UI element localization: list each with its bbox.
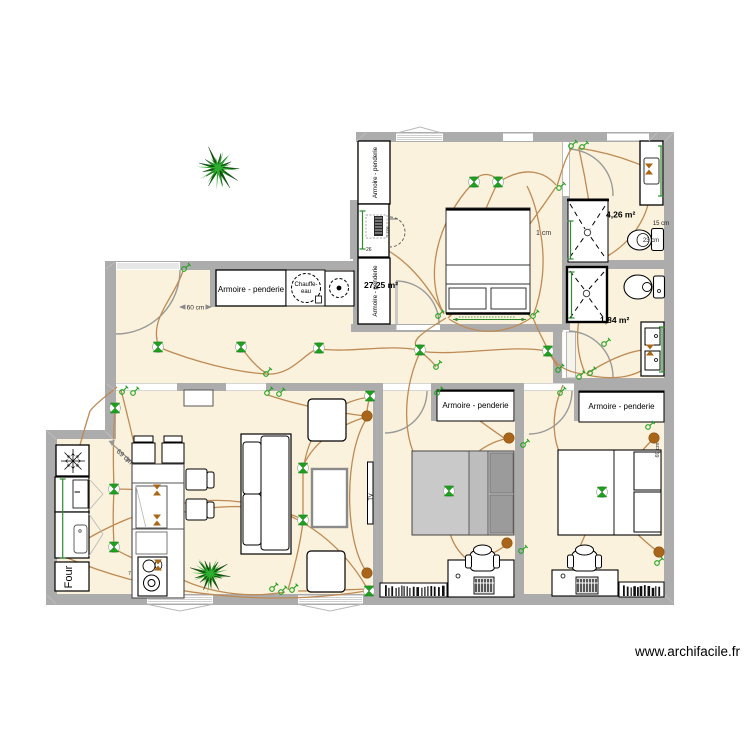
svg-text:www.archifacile.fr: www.archifacile.fr bbox=[634, 644, 741, 659]
svg-text:4,26 m²: 4,26 m² bbox=[606, 210, 635, 220]
svg-text:Armoire - penderie: Armoire - penderie bbox=[218, 285, 285, 294]
svg-text:Four: Four bbox=[63, 565, 75, 588]
svg-text:TV: TV bbox=[369, 493, 375, 500]
svg-text:26: 26 bbox=[366, 247, 372, 253]
svg-text:69 cm: 69 cm bbox=[655, 442, 661, 457]
svg-text:60 cm: 60 cm bbox=[187, 305, 205, 312]
svg-text:1 cm: 1 cm bbox=[536, 230, 551, 237]
svg-text:eau: eau bbox=[301, 289, 311, 295]
svg-text:27,25 m²: 27,25 m² bbox=[364, 280, 398, 290]
svg-text:Armoire - penderie: Armoire - penderie bbox=[372, 146, 379, 198]
svg-text:Armoire - penderie: Armoire - penderie bbox=[442, 401, 509, 410]
svg-text:15 cm: 15 cm bbox=[653, 221, 669, 227]
svg-text:Armoire - penderie: Armoire - penderie bbox=[372, 265, 379, 317]
svg-text:1 cm: 1 cm bbox=[385, 227, 391, 237]
svg-text:Chauffe-: Chauffe- bbox=[295, 282, 318, 288]
svg-text:23 cm: 23 cm bbox=[643, 238, 659, 244]
svg-text:Armoire - penderie: Armoire - penderie bbox=[588, 402, 655, 411]
svg-text:1,84 m²: 1,84 m² bbox=[600, 315, 629, 325]
